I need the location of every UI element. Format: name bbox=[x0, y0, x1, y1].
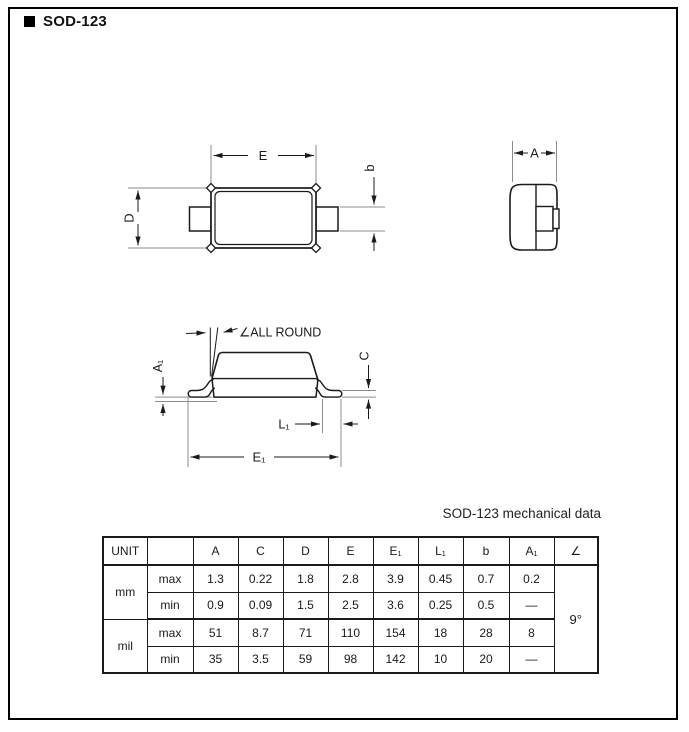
cell-mil-min-C: 3.5 bbox=[238, 646, 283, 673]
cell-mil-min-E1: 142 bbox=[373, 646, 418, 673]
mechanical-data-table: UNIT A C D E E₁ L₁ b A₁ ∠ mm max 1.3 0.2… bbox=[102, 536, 599, 674]
col-header-L1: L₁ bbox=[418, 537, 463, 565]
cell-mil-min-D: 59 bbox=[283, 646, 328, 673]
cell-mil-min-A1: — bbox=[509, 646, 554, 673]
row-label-min: min bbox=[147, 646, 193, 673]
cell-mil-max-E: 110 bbox=[328, 619, 373, 646]
table-header-row: UNIT A C D E E₁ L₁ b A₁ ∠ bbox=[103, 537, 598, 565]
cell-mm-max-b: 0.7 bbox=[463, 565, 509, 592]
cell-mil-max-C: 8.7 bbox=[238, 619, 283, 646]
side-view-body-cap bbox=[212, 353, 318, 379]
cell-mm-min-C: 0.09 bbox=[238, 592, 283, 619]
package-outline-drawing: E D b A bbox=[0, 0, 689, 505]
dim-label-A1: A₁ bbox=[151, 360, 165, 373]
dim-label-A: A bbox=[530, 146, 539, 161]
cell-mm-min-E: 2.5 bbox=[328, 592, 373, 619]
cell-mm-max-A1: 0.2 bbox=[509, 565, 554, 592]
col-header-blank bbox=[147, 537, 193, 565]
cell-mm-min-E1: 3.6 bbox=[373, 592, 418, 619]
col-header-unit: UNIT bbox=[103, 537, 147, 565]
row-label-max: max bbox=[147, 565, 193, 592]
cell-mm-max-A: 1.3 bbox=[193, 565, 238, 592]
table-row-mil-min: min 35 3.5 59 98 142 10 20 — bbox=[103, 646, 598, 673]
table-row-mm-min: min 0.9 0.09 1.5 2.5 3.6 0.25 0.5 — bbox=[103, 592, 598, 619]
dim-label-D: D bbox=[122, 213, 137, 222]
cell-mil-max-b: 28 bbox=[463, 619, 509, 646]
all-round-label: ∠ALL ROUND bbox=[239, 326, 321, 340]
cell-mm-max-D: 1.8 bbox=[283, 565, 328, 592]
unit-cell-mil: mil bbox=[103, 619, 147, 673]
top-view-body bbox=[211, 188, 316, 248]
cell-mil-max-E1: 154 bbox=[373, 619, 418, 646]
side-view-left-lead bbox=[188, 380, 215, 398]
dim-label-C: C bbox=[358, 351, 372, 360]
row-label-min: min bbox=[147, 592, 193, 619]
cell-mm-min-L1: 0.25 bbox=[418, 592, 463, 619]
side-view: ∠ALL ROUND A₁ C L₁ E₁ bbox=[151, 326, 376, 468]
cell-mil-max-A1: 8 bbox=[509, 619, 554, 646]
cell-mil-max-L1: 18 bbox=[418, 619, 463, 646]
side-view-right-lead bbox=[315, 380, 342, 398]
top-view-right-lead bbox=[316, 207, 338, 231]
cell-mm-min-A1: — bbox=[509, 592, 554, 619]
cell-mm-min-A: 0.9 bbox=[193, 592, 238, 619]
col-header-angle: ∠ bbox=[554, 537, 598, 565]
cell-mil-min-b: 20 bbox=[463, 646, 509, 673]
end-view: A bbox=[510, 141, 559, 250]
top-view: E D b bbox=[122, 145, 386, 253]
dim-label-E: E bbox=[259, 148, 268, 163]
cell-mil-min-L1: 10 bbox=[418, 646, 463, 673]
table-row-mm-max: mm max 1.3 0.22 1.8 2.8 3.9 0.45 0.7 0.2… bbox=[103, 565, 598, 592]
cell-mm-min-b: 0.5 bbox=[463, 592, 509, 619]
col-header-D: D bbox=[283, 537, 328, 565]
cell-mil-max-D: 71 bbox=[283, 619, 328, 646]
dim-label-b: b bbox=[362, 164, 377, 171]
row-label-max: max bbox=[147, 619, 193, 646]
col-header-E: E bbox=[328, 537, 373, 565]
table-row-mil-max: mil max 51 8.7 71 110 154 18 28 8 bbox=[103, 619, 598, 646]
angle-value-cell: 9° bbox=[554, 565, 598, 673]
cell-mm-min-D: 1.5 bbox=[283, 592, 328, 619]
dim-label-L1: L₁ bbox=[278, 418, 289, 432]
end-view-lead bbox=[536, 207, 553, 232]
dim-label-E1: E₁ bbox=[252, 450, 266, 465]
cell-mm-max-C: 0.22 bbox=[238, 565, 283, 592]
col-header-b: b bbox=[463, 537, 509, 565]
end-view-lead-tip bbox=[553, 209, 559, 229]
unit-cell-mm: mm bbox=[103, 565, 147, 619]
col-header-A: A bbox=[193, 537, 238, 565]
cell-mm-max-E: 2.8 bbox=[328, 565, 373, 592]
cell-mil-max-A: 51 bbox=[193, 619, 238, 646]
cell-mil-min-E: 98 bbox=[328, 646, 373, 673]
col-header-E1: E₁ bbox=[373, 537, 418, 565]
table-title: SOD-123 mechanical data bbox=[443, 506, 601, 521]
cell-mil-min-A: 35 bbox=[193, 646, 238, 673]
col-header-C: C bbox=[238, 537, 283, 565]
cell-mm-max-E1: 3.9 bbox=[373, 565, 418, 592]
col-header-A1: A₁ bbox=[509, 537, 554, 565]
top-view-left-lead bbox=[190, 207, 212, 231]
cell-mm-max-L1: 0.45 bbox=[418, 565, 463, 592]
